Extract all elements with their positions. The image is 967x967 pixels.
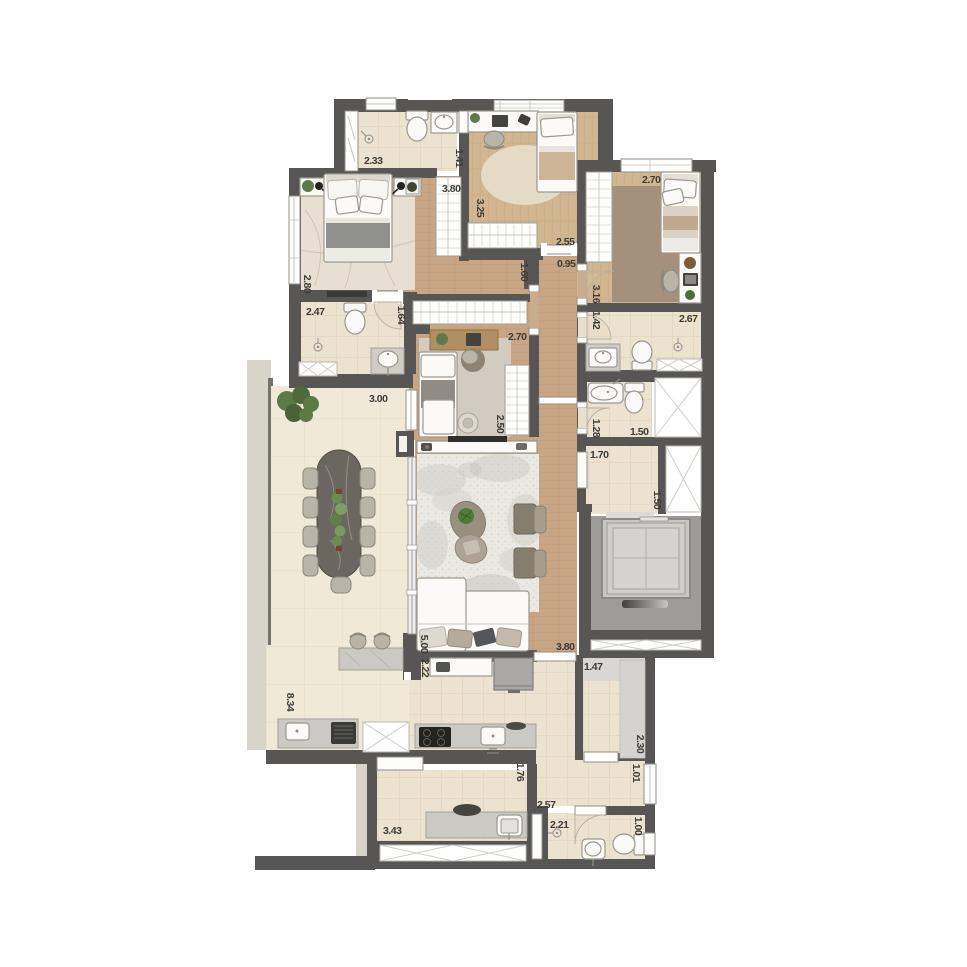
svg-text:1.00: 1.00 <box>632 817 644 836</box>
svg-text:2.30: 2.30 <box>634 735 646 754</box>
svg-text:3.80: 3.80 <box>442 183 461 195</box>
svg-text:2.67: 2.67 <box>679 313 698 325</box>
svg-text:1.70: 1.70 <box>590 449 609 461</box>
svg-text:0.95: 0.95 <box>557 258 576 270</box>
svg-text:2.70: 2.70 <box>508 331 527 343</box>
svg-text:1.41: 1.41 <box>453 149 465 168</box>
svg-text:1.50: 1.50 <box>651 491 663 510</box>
svg-text:3.16: 3.16 <box>590 285 602 304</box>
svg-text:2.50: 2.50 <box>494 415 506 434</box>
svg-text:5.00: 5.00 <box>418 635 430 654</box>
svg-text:1.64: 1.64 <box>395 306 407 325</box>
svg-text:2.33: 2.33 <box>364 155 383 167</box>
svg-text:2.70: 2.70 <box>642 174 661 186</box>
svg-text:2.47: 2.47 <box>306 306 325 318</box>
svg-text:2.57: 2.57 <box>537 799 556 811</box>
svg-text:3.80: 3.80 <box>556 641 575 653</box>
svg-text:2.80: 2.80 <box>301 275 313 294</box>
svg-text:1.47: 1.47 <box>584 661 603 673</box>
svg-text:1.42: 1.42 <box>590 311 602 330</box>
svg-text:2.21: 2.21 <box>550 819 569 831</box>
svg-text:3.43: 3.43 <box>383 825 402 837</box>
svg-text:8.34: 8.34 <box>284 693 296 712</box>
svg-text:2.55: 2.55 <box>556 236 575 248</box>
svg-text:1.60: 1.60 <box>518 263 530 282</box>
svg-text:1.76: 1.76 <box>514 763 526 782</box>
svg-text:2.22: 2.22 <box>419 659 431 678</box>
svg-text:3.00: 3.00 <box>369 393 388 405</box>
svg-text:3.25: 3.25 <box>474 199 486 218</box>
svg-text:1.01: 1.01 <box>630 764 642 783</box>
svg-text:1.50: 1.50 <box>630 426 649 438</box>
svg-text:1.28: 1.28 <box>590 419 602 438</box>
